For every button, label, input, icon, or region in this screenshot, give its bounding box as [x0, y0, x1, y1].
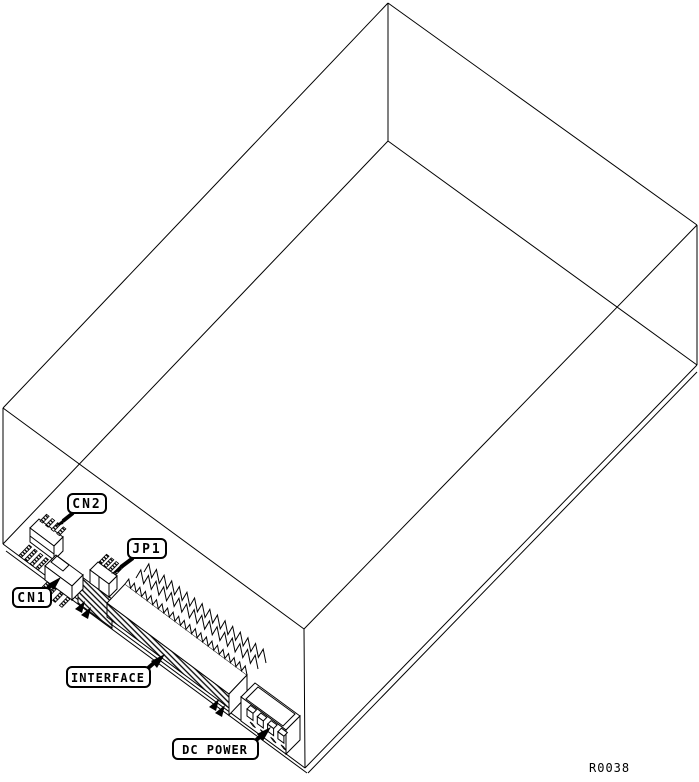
callout-jp1: JP1	[111, 539, 166, 574]
cn1-callout-label: CN1	[17, 591, 46, 606]
drive-outline-edges	[3, 3, 697, 768]
callout-interface: INTERFACE	[67, 654, 165, 687]
drawing-number: R0038	[589, 761, 630, 775]
callout-cn2: CN2	[54, 494, 106, 527]
jp1-callout-label: JP1	[132, 542, 161, 557]
dc-power-callout-label: DC POWER	[182, 743, 248, 757]
drive-wireframe	[3, 3, 697, 773]
connector-location-diagram: CN2 JP1 CN1 INTERFACE DC POWER R0038	[0, 0, 699, 782]
cn2-callout-label: CN2	[72, 497, 101, 512]
interface-callout-label: INTERFACE	[71, 671, 145, 685]
jp1-callout-tail	[121, 558, 133, 567]
